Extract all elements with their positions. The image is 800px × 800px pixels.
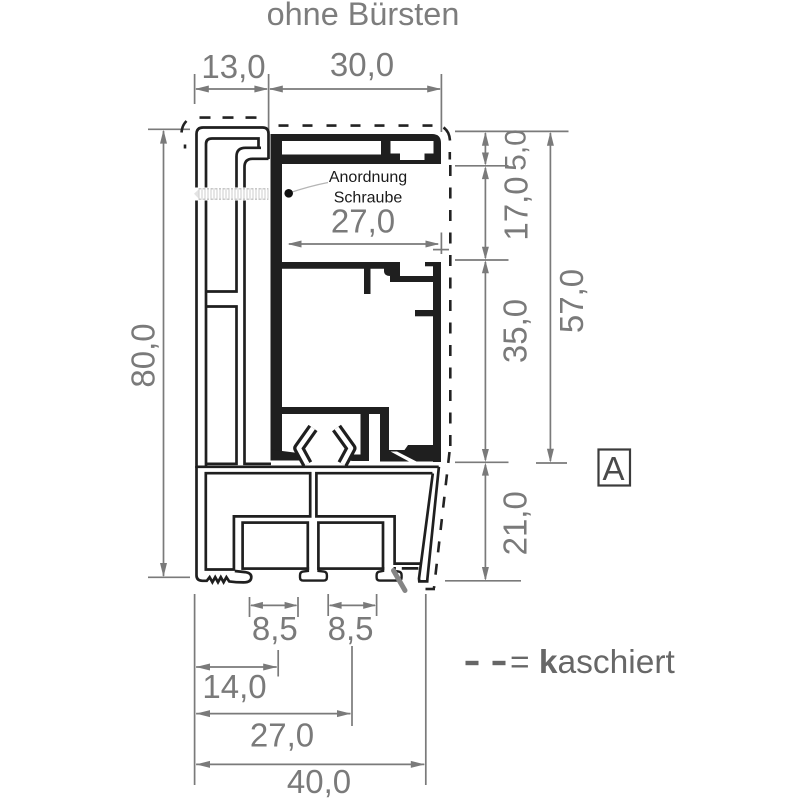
svg-text:17,0: 17,0 [498,176,535,240]
svg-text:8,5: 8,5 [328,610,374,647]
svg-text:13,0: 13,0 [201,48,265,85]
svg-text:30,0: 30,0 [330,46,394,83]
svg-text:27,0: 27,0 [331,203,395,240]
svg-text:= kaschiert: = kaschiert [510,644,676,681]
svg-text:Anordnung: Anordnung [329,169,407,186]
svg-text:80,0: 80,0 [125,323,162,387]
svg-text:14,0: 14,0 [202,668,266,705]
svg-text:27,0: 27,0 [250,717,314,754]
svg-text:8,5: 8,5 [252,610,298,647]
svg-text:40,0: 40,0 [287,763,351,800]
svg-text:21,0: 21,0 [497,491,534,555]
svg-text:35,0: 35,0 [497,299,534,363]
svg-text:ohne Bürsten: ohne Bürsten [267,0,460,32]
svg-text:A: A [602,450,624,487]
svg-text:57,0: 57,0 [553,269,590,333]
svg-text:5,0: 5,0 [500,129,533,171]
